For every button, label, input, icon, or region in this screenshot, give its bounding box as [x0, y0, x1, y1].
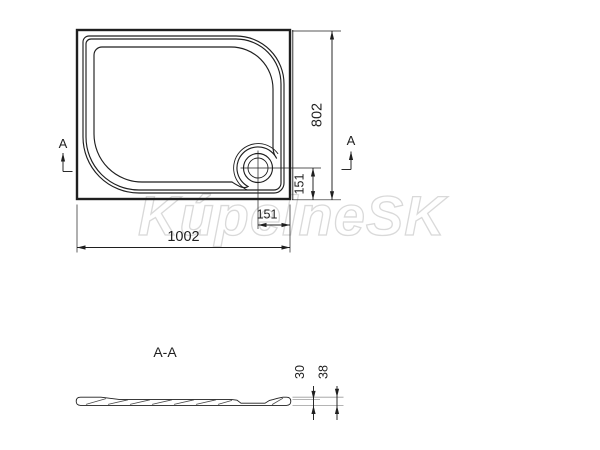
top-view: 1002 802 151 151 A	[59, 30, 356, 253]
tray-basin-contour	[94, 47, 277, 188]
dimension-section-total-height: 38	[317, 365, 340, 420]
arrow-38-top	[335, 389, 339, 398]
arrow-38-bottom	[335, 406, 339, 415]
section-marker-right: A	[342, 133, 356, 170]
drawing-canvas: 1002 802 151 151 A	[0, 0, 600, 450]
tray-rim-inner-contour	[86, 39, 281, 190]
dimension-label-width: 1002	[167, 229, 199, 245]
dimension-drain-from-bottom: 151	[293, 168, 314, 200]
section-marker-left-label: A	[59, 136, 68, 151]
dimension-label-38: 38	[317, 365, 331, 379]
dimension-label-drain-bottom: 151	[293, 174, 307, 195]
tray-rim-outer-contour	[83, 36, 284, 193]
drain-pocket-contour	[234, 144, 278, 191]
dimension-label-height: 802	[310, 103, 326, 127]
dimension-label-drain-right: 151	[257, 208, 278, 222]
arrow-30-bottom	[311, 406, 315, 415]
dimension-drain-from-right: 151	[257, 208, 290, 226]
dimension-section-inner-height: 30	[293, 365, 316, 420]
technical-drawing-page: KúpelneSK 1002	[0, 0, 600, 450]
dimension-label-30: 30	[293, 365, 307, 379]
section-marker-right-label: A	[347, 133, 356, 148]
section-marker-left: A	[59, 136, 73, 172]
section-view: A-A 30	[76, 344, 343, 420]
arrow-30-top	[311, 391, 315, 400]
section-title: A-A	[153, 344, 177, 360]
